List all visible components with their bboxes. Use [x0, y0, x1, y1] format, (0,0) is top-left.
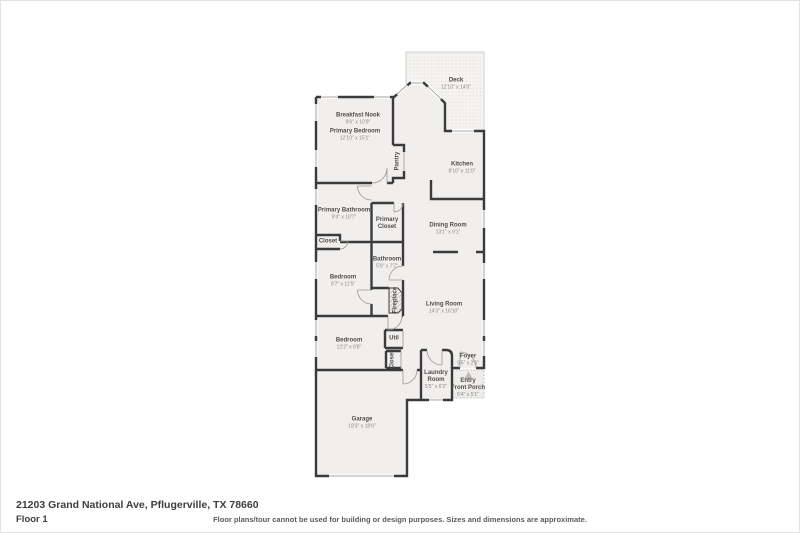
house-floor: [316, 83, 484, 476]
fireplace-box: [389, 288, 402, 313]
floor-plan-svg: [0, 0, 800, 533]
front-porch-area: [452, 370, 484, 398]
disclaimer-text: Floor plans/tour cannot be used for buil…: [0, 515, 800, 524]
address-text: 21203 Grand National Ave, Pflugerville, …: [16, 499, 259, 512]
floor-plan-page: Deck 12'10" x 14'0" Breakfast Nook 9'6" …: [0, 0, 800, 533]
